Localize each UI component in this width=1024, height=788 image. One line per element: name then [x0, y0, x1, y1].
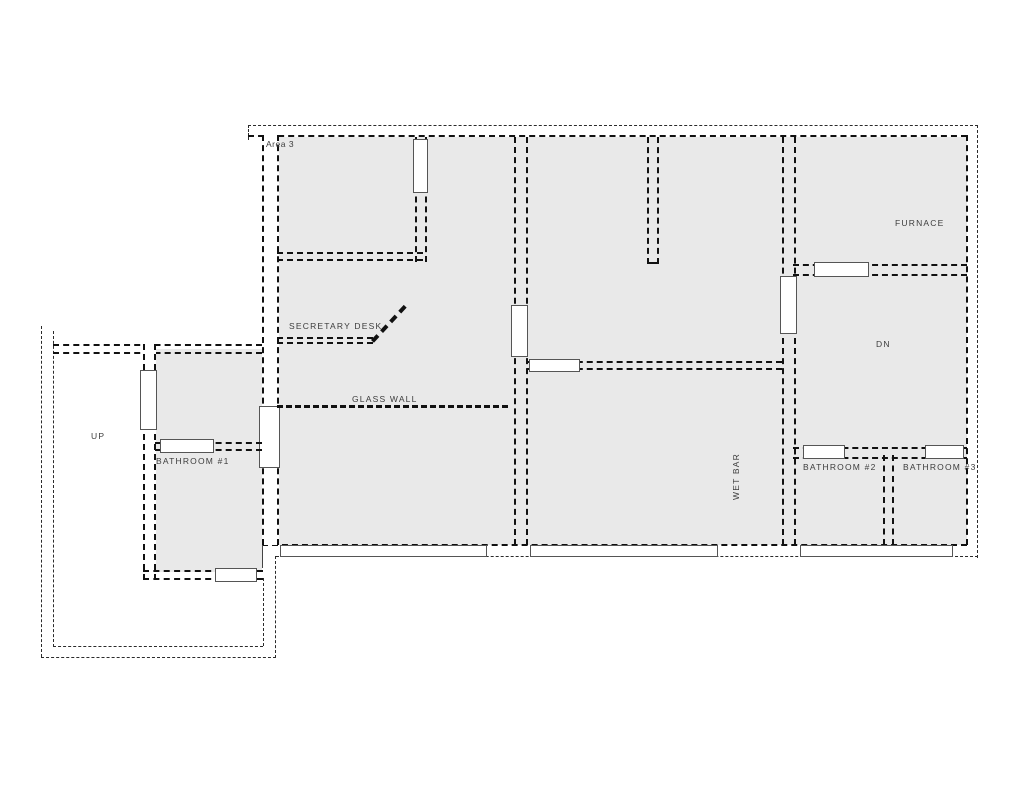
wall-step-edge [262, 545, 263, 568]
outer-boundary-top-left-stub [248, 125, 249, 140]
label-wet-bar: WET BAR [731, 453, 741, 500]
window-bottom-middle [530, 545, 718, 557]
wall-right [966, 135, 968, 545]
door-opening-left-room [511, 305, 528, 357]
door-opening-bathroom2 [803, 445, 845, 459]
outer-boundary-left [41, 326, 42, 657]
label-bathroom-3: BATHROOM #3 [903, 462, 977, 472]
door-opening-furnace [814, 262, 869, 277]
door-opening-wet-bar [529, 359, 580, 372]
secretary-desk-outline [277, 337, 373, 344]
stair-inner-boundary-left [53, 331, 54, 647]
stair-inner-boundary-bottom [53, 646, 263, 647]
wall-annex-top-outer [53, 344, 262, 346]
wall-corner-room-bottom [277, 252, 423, 261]
window-bottom-right [800, 545, 953, 557]
label-up: UP [91, 431, 105, 441]
outer-boundary-annex-bottom [41, 657, 276, 658]
outer-boundary-top [248, 125, 978, 126]
label-glass-wall: GLASS WALL [352, 394, 418, 404]
door-opening-annex-bottom [215, 568, 257, 582]
wall-middle-stub [647, 137, 659, 264]
door-opening-left-wall [259, 406, 280, 468]
label-secretary-desk: SECRETARY DESK [289, 321, 382, 331]
label-area-3: Area 3 [266, 139, 294, 149]
door-opening-bathroom1 [160, 439, 214, 453]
door-opening-annex-left [140, 370, 157, 430]
wall-right-section-left [782, 137, 796, 545]
label-furnace: FURNACE [895, 218, 945, 228]
label-bathroom-1: BATHROOM #1 [156, 456, 230, 466]
wall-annex-top-inner [53, 352, 262, 354]
glass-wall-line [277, 405, 508, 408]
room-fill-main [277, 137, 967, 545]
label-dn: DN [876, 339, 891, 349]
outer-boundary-right [977, 125, 978, 558]
window-bottom-left [280, 545, 487, 557]
floor-plan-canvas: Area 3 SECRETARY DESK GLASS WALL UP BATH… [0, 0, 1024, 788]
door-opening-stair-room [780, 276, 797, 334]
wall-between-bathrooms [883, 455, 894, 545]
outer-boundary-annex-right [275, 556, 276, 658]
label-bathroom-2: BATHROOM #2 [803, 462, 877, 472]
door-opening-bathroom3 [925, 445, 964, 459]
wall-top [248, 135, 967, 137]
door-opening-corner-room [413, 139, 428, 193]
stair-inner-boundary-right [263, 578, 264, 646]
